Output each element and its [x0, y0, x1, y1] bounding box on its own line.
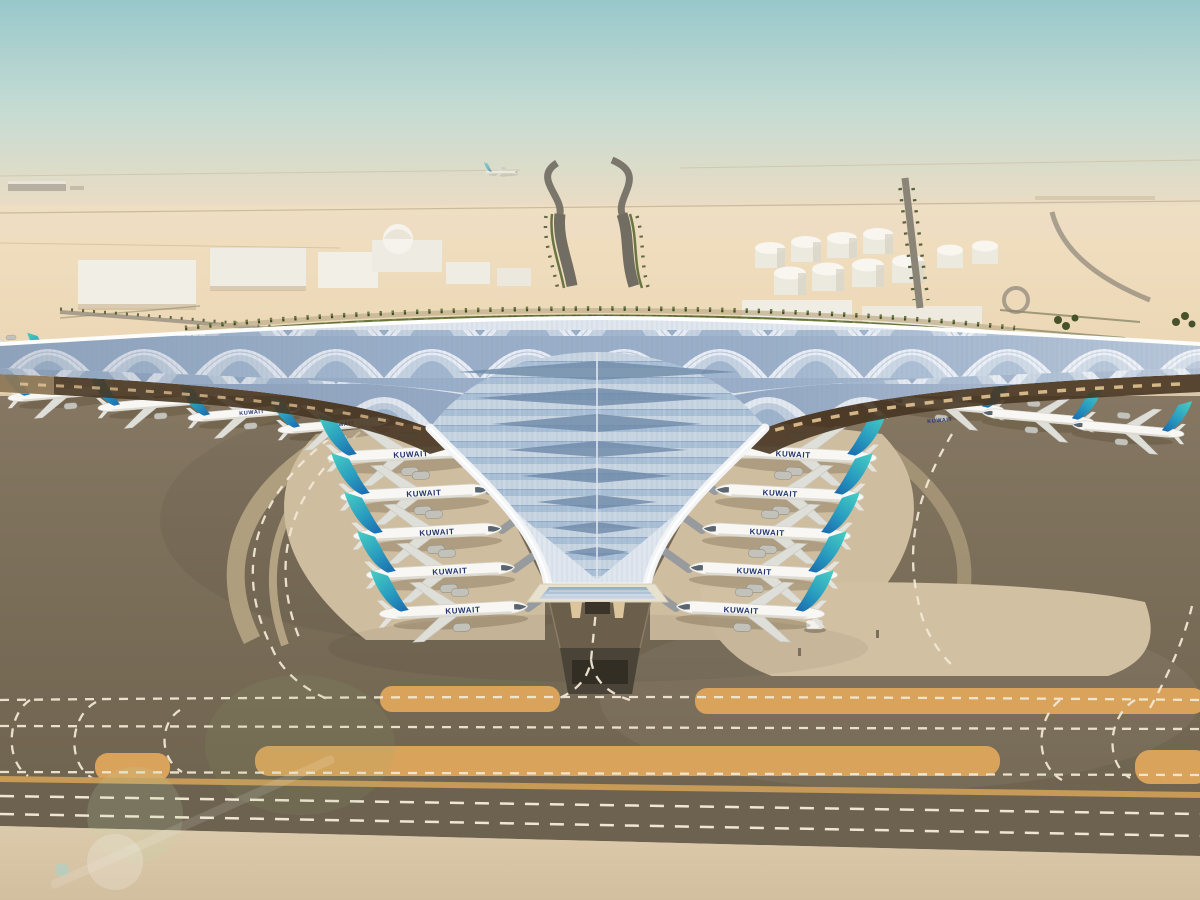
render-canvas: KUWAIT KUWAIT KUWAIT KUWAIT KUWAIT KUWAI…	[0, 0, 1200, 900]
aircraft-livery-text: KUWAIT	[432, 566, 468, 577]
far-right-smudge	[1035, 196, 1155, 200]
warehouse	[210, 248, 306, 290]
aircraft-livery-text: KUWAIT	[406, 488, 442, 499]
aircraft-livery-text: KUWAIT	[419, 527, 455, 538]
facade-entrance	[585, 602, 610, 614]
aircraft-livery-text: KUWAIT	[762, 488, 798, 499]
aircraft-livery-text: KUWAIT	[723, 605, 759, 616]
small-shed	[497, 268, 531, 286]
airport-aerial-render: KUWAIT KUWAIT KUWAIT KUWAIT KUWAIT KUWAI…	[0, 0, 1200, 900]
small-shed	[446, 262, 490, 284]
aircraft-livery-text: KUWAIT	[736, 566, 772, 577]
aircraft-livery-text: KUWAIT	[393, 449, 429, 460]
warehouse	[78, 260, 196, 308]
orange-strip	[1135, 750, 1200, 784]
apron-post	[876, 630, 879, 638]
warehouse	[318, 252, 378, 288]
facade-column	[613, 602, 625, 618]
horizon-haze	[0, 198, 1200, 238]
apron-post	[798, 648, 801, 656]
aircraft-livery-text: KUWAIT	[445, 605, 481, 616]
orange-strip	[695, 688, 1200, 714]
aircraft-livery-text: KUWAIT	[775, 449, 811, 460]
facade-glass	[539, 587, 656, 599]
aircraft-livery-text: KUWAIT	[749, 527, 785, 538]
facade-column	[570, 602, 582, 618]
orange-strip	[380, 686, 560, 712]
